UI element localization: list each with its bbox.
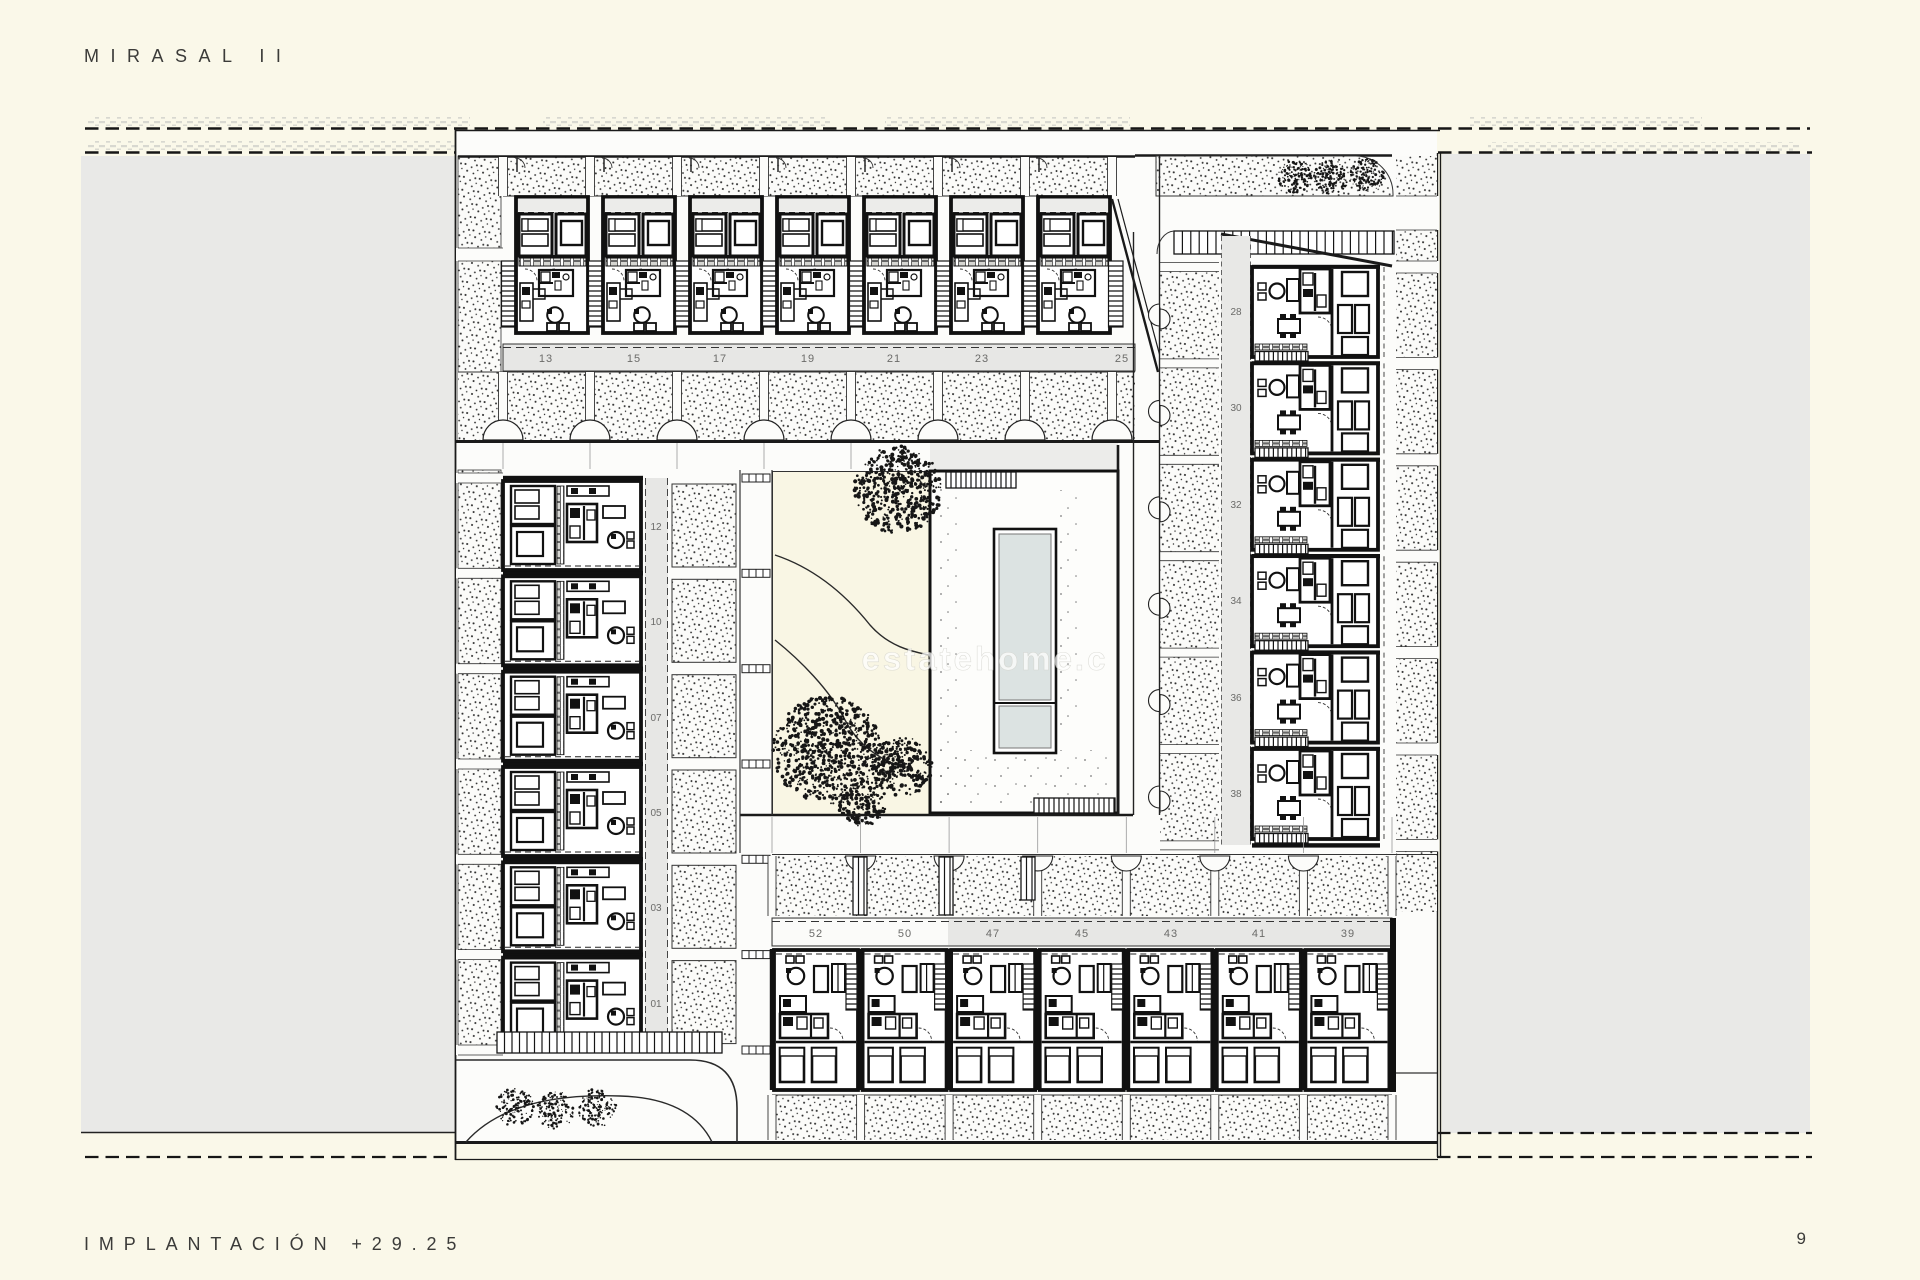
svg-text:38: 38 (1230, 789, 1242, 800)
svg-text:23: 23 (975, 353, 989, 365)
svg-text:36: 36 (1230, 693, 1242, 704)
svg-text:07: 07 (650, 713, 662, 724)
svg-text:39: 39 (1341, 928, 1355, 940)
svg-text:9: 9 (1797, 1229, 1806, 1248)
svg-text:28: 28 (1230, 307, 1242, 318)
svg-text:12: 12 (650, 522, 662, 533)
svg-text:MIRASAL II: MIRASAL II (84, 46, 292, 66)
svg-text:41: 41 (1252, 928, 1266, 940)
svg-text:05: 05 (650, 808, 662, 819)
svg-text:45: 45 (1075, 928, 1089, 940)
svg-text:17: 17 (713, 353, 727, 365)
svg-text:52: 52 (809, 928, 823, 940)
svg-text:10: 10 (650, 617, 662, 628)
svg-text:IMPLANTACIÓN +29.25: IMPLANTACIÓN +29.25 (84, 1233, 466, 1254)
svg-text:estatehome.c: estatehome.c (862, 640, 1109, 677)
svg-text:03: 03 (650, 903, 662, 914)
svg-text:01: 01 (650, 999, 662, 1010)
svg-text:43: 43 (1164, 928, 1178, 940)
svg-text:50: 50 (898, 928, 912, 940)
svg-text:13: 13 (539, 353, 553, 365)
svg-text:21: 21 (887, 353, 901, 365)
svg-text:25: 25 (1115, 353, 1129, 365)
svg-text:47: 47 (986, 928, 1000, 940)
svg-text:32: 32 (1230, 500, 1242, 511)
svg-text:34: 34 (1230, 596, 1242, 607)
svg-text:30: 30 (1230, 403, 1242, 414)
svg-text:15: 15 (627, 353, 641, 365)
svg-text:19: 19 (801, 353, 815, 365)
